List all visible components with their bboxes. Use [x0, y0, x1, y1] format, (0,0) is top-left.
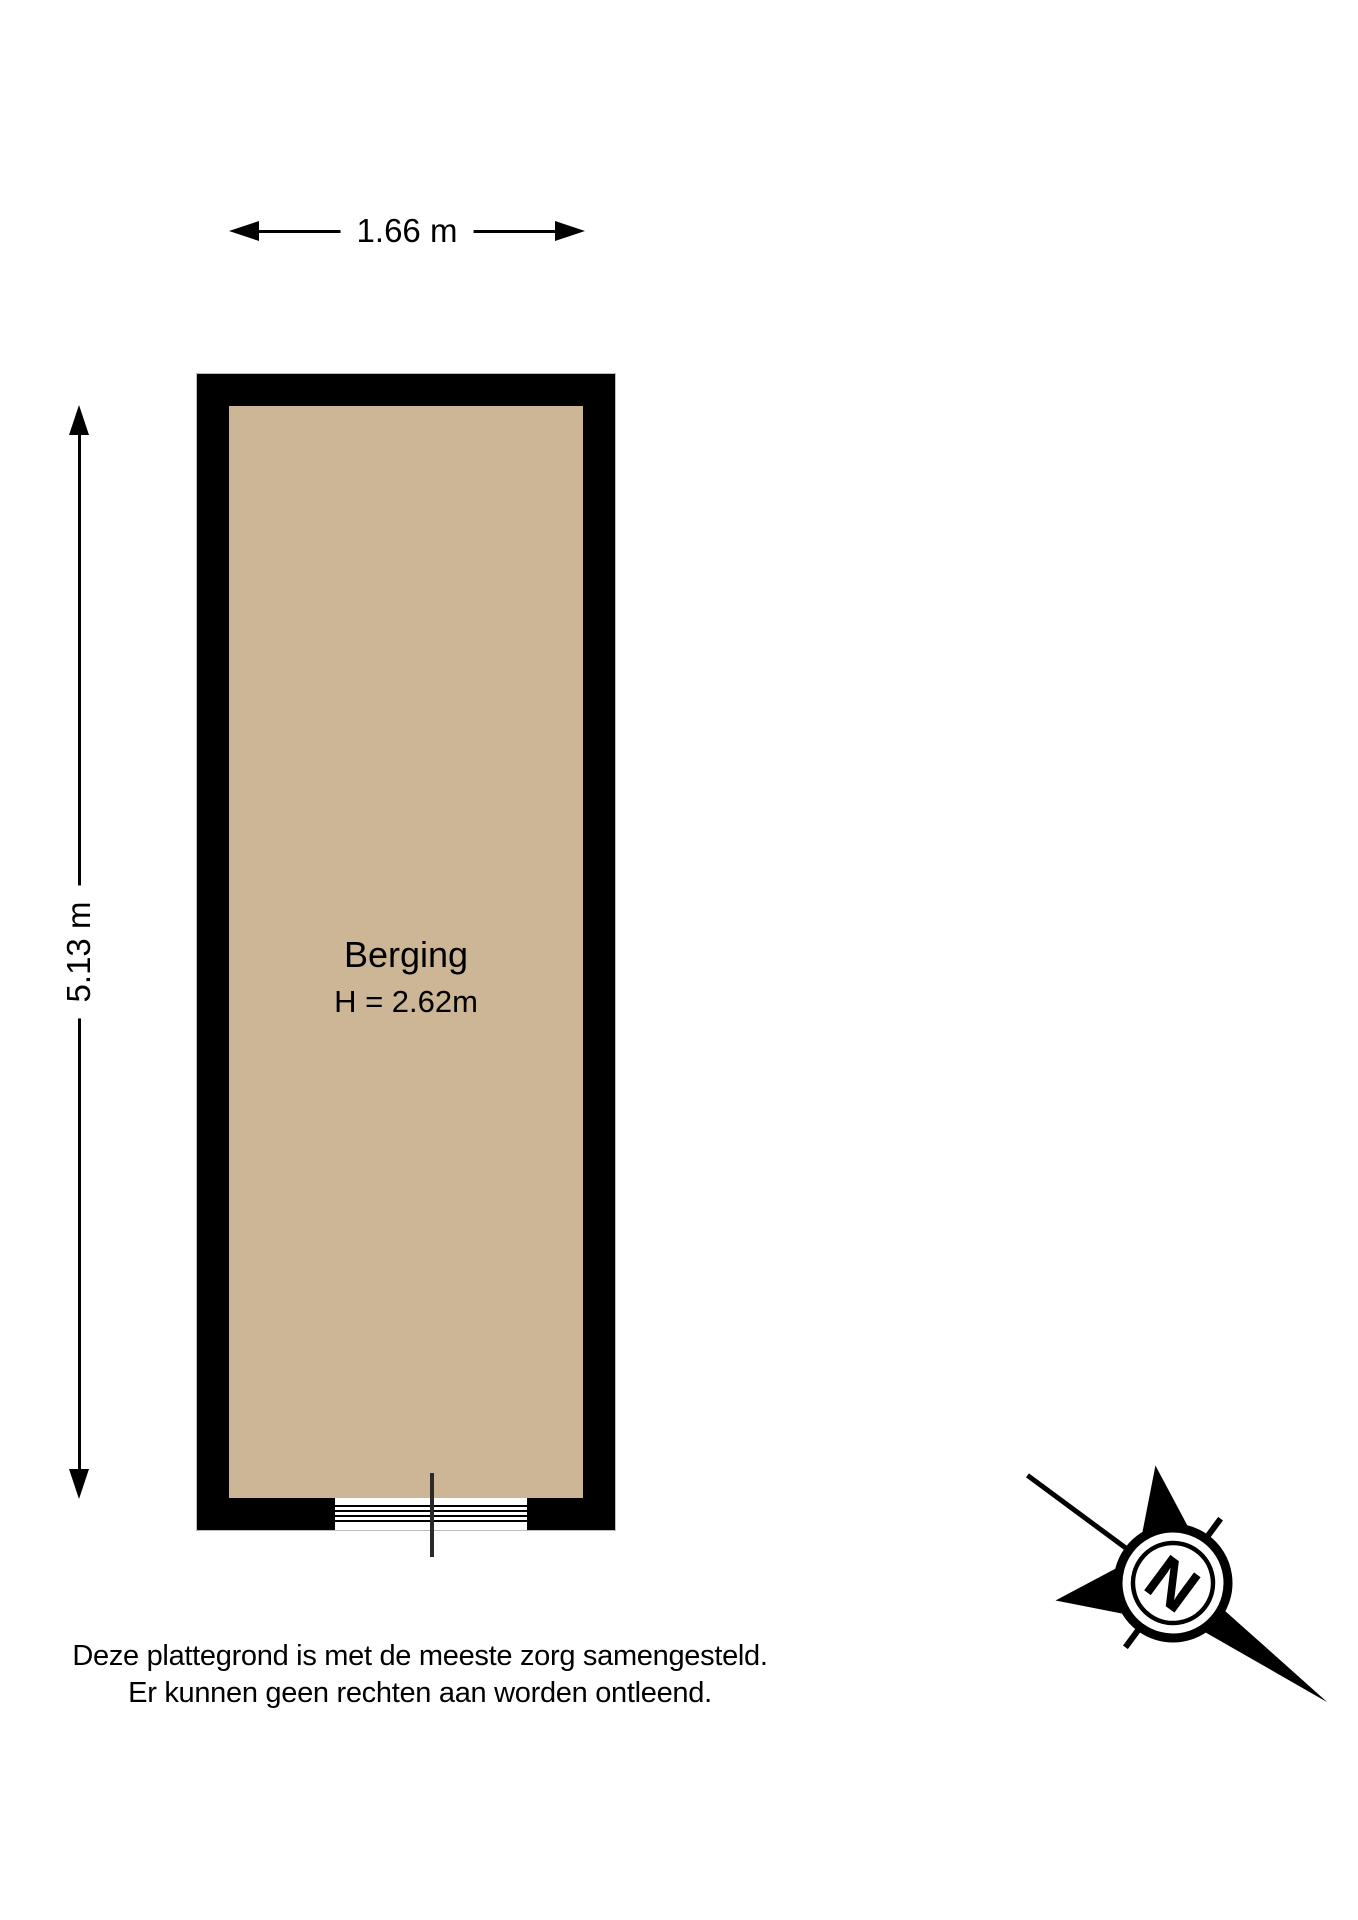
width-dimension-label: 1.66 m	[341, 212, 474, 250]
disclaimer: Deze plattegrond is met de meeste zorg s…	[0, 1638, 840, 1712]
door-axis-line	[430, 1473, 434, 1557]
arrowhead-down-icon	[69, 1469, 89, 1499]
height-dimension-label: 5.13 m	[60, 886, 98, 1019]
width-dimension: 1.66 m	[229, 213, 585, 249]
arrowhead-right-icon	[555, 221, 585, 241]
room-name-label: Berging	[197, 934, 615, 976]
north-compass-icon: N	[953, 1393, 1358, 1773]
height-dimension: 5.13 m	[61, 405, 97, 1499]
floorplan-canvas: 1.66 m 5.13 m Berging H = 2.62m	[0, 0, 1358, 1920]
disclaimer-line-2: Er kunnen geen rechten aan worden ontlee…	[0, 1675, 840, 1712]
room-ceiling-height-label: H = 2.62m	[197, 984, 615, 1020]
disclaimer-line-1: Deze plattegrond is met de meeste zorg s…	[0, 1638, 840, 1675]
room-walls: Berging H = 2.62m	[197, 374, 615, 1530]
room-label: Berging H = 2.62m	[197, 934, 615, 1020]
